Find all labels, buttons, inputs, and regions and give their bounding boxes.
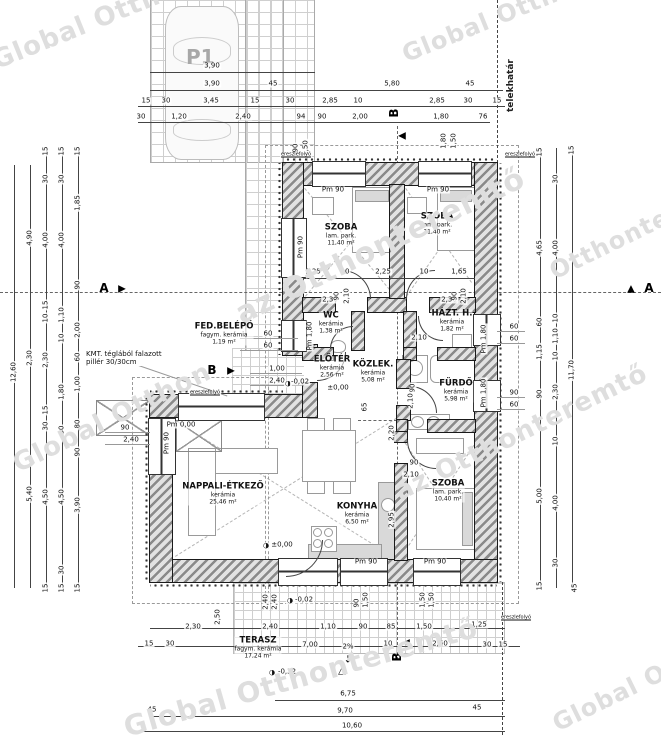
dim-label: 10 bbox=[553, 351, 560, 362]
dim-label: 2,50 bbox=[215, 608, 222, 626]
wall-interior bbox=[404, 312, 416, 348]
room-name: TERASZ bbox=[234, 637, 281, 646]
section-marker: B bbox=[390, 652, 404, 661]
dim-label: Pm 0,00 bbox=[166, 422, 197, 429]
room-area: 2,56 m² bbox=[314, 372, 351, 379]
dim-label: 1,00 bbox=[75, 375, 82, 393]
dim-label: 30 bbox=[463, 98, 474, 105]
dim-label: 45 bbox=[465, 81, 476, 88]
wall-interior bbox=[438, 348, 475, 360]
dim-line bbox=[138, 731, 505, 732]
dim-label: 1,10 bbox=[59, 306, 66, 324]
leader-line bbox=[497, 397, 525, 398]
dim-label: Pm 90 bbox=[354, 559, 378, 566]
dim-label: Pm 90 bbox=[426, 187, 450, 194]
dim-label: 1,50 bbox=[429, 591, 436, 609]
dim-line bbox=[150, 72, 315, 73]
dim-label: 2,40 bbox=[263, 593, 270, 611]
dim-label: 90 bbox=[358, 624, 369, 631]
dim-label: 90 bbox=[509, 390, 520, 397]
room-name: SZOBA bbox=[432, 480, 465, 489]
dim-label: -0,32 bbox=[277, 669, 297, 676]
dim-label: 15 bbox=[537, 147, 544, 158]
dim-line bbox=[138, 106, 505, 107]
room-finish: kerámia bbox=[314, 365, 351, 372]
stove-burner bbox=[313, 528, 322, 537]
room-label-k-zlek-: KÖZLEK.kerámia5,08 m² bbox=[353, 361, 394, 384]
dim-label: ereszlefolyó bbox=[504, 153, 536, 158]
wall-exterior-right bbox=[475, 163, 497, 582]
dim-label: 1,80 bbox=[59, 383, 66, 401]
dim-label: ◑ bbox=[268, 670, 276, 677]
dim-label: 15 bbox=[59, 583, 66, 594]
dim-label: 7,00 bbox=[301, 642, 319, 649]
dim-label: 2,40 bbox=[234, 114, 252, 121]
room-area: 1,38 m² bbox=[319, 328, 343, 335]
room-area: 1,19 m² bbox=[195, 339, 254, 346]
dim-label: ereszlefolyó bbox=[500, 616, 532, 621]
wall-interior bbox=[390, 185, 404, 298]
dim-label: 90 bbox=[317, 114, 328, 121]
dim-label: 2,40 bbox=[272, 593, 279, 611]
dim-line bbox=[540, 148, 541, 588]
dim-label: 1,80 bbox=[441, 132, 448, 150]
section-marker: ◀ bbox=[398, 131, 406, 142]
room-area: 11,40 m² bbox=[421, 229, 454, 236]
dim-label: 1,50 bbox=[415, 624, 433, 631]
wall-interior bbox=[404, 348, 416, 360]
bed-pillow bbox=[355, 190, 389, 202]
dim-label: 60 bbox=[537, 317, 544, 328]
dim-label: 2,10 bbox=[402, 472, 420, 479]
room-label-konyha: KONYHAkerámia6,50 m² bbox=[337, 503, 377, 526]
dim-label: 15 bbox=[75, 146, 82, 157]
dim-label: 15 bbox=[43, 405, 50, 416]
section-marker: A bbox=[644, 281, 653, 295]
window-bedroom2-top bbox=[418, 161, 472, 187]
watermark-text: Otthonteremtő bbox=[545, 165, 661, 285]
dim-label: 4,00 bbox=[43, 231, 50, 249]
dim-label: 4,00 bbox=[553, 494, 560, 512]
room-label-el-t-r: ELŐTÉRkerámia2,56 m² bbox=[314, 356, 351, 379]
section-marker: ▲ bbox=[627, 284, 635, 295]
dim-label: 1,15 bbox=[537, 343, 544, 361]
dining-table bbox=[302, 430, 356, 482]
room-area: 5,98 m² bbox=[439, 396, 473, 403]
dim-label: ±0,00 bbox=[326, 385, 349, 392]
kitchen-sink bbox=[381, 498, 395, 512]
dim-label: 2% bbox=[341, 644, 354, 651]
dim-label: 2,30 bbox=[27, 349, 34, 367]
stove-burner bbox=[324, 539, 333, 548]
dim-label: 1,20 bbox=[170, 114, 188, 121]
dim-label: Pm 90 bbox=[321, 187, 345, 194]
dim-label: Pm 90 bbox=[164, 431, 171, 455]
dim-line bbox=[150, 90, 503, 91]
insulation-right bbox=[497, 163, 504, 582]
note-line: pillér 30/30cm bbox=[86, 358, 162, 366]
dim-label: Pm 90 bbox=[423, 559, 447, 566]
leader-line bbox=[497, 331, 525, 332]
room-name: KÖZLEK. bbox=[353, 361, 394, 370]
dim-label: 60 bbox=[509, 324, 520, 331]
plot-boundary-line-bottom bbox=[502, 582, 503, 735]
dim-label: ◑ bbox=[286, 598, 294, 605]
dim-label: 10 bbox=[383, 641, 394, 648]
sink-bowl bbox=[411, 416, 424, 428]
dim-label: 15 bbox=[250, 98, 261, 105]
dim-label: 30 bbox=[59, 565, 66, 576]
dim-label: 15 bbox=[144, 641, 155, 648]
dim-label: 2,25 bbox=[374, 269, 392, 276]
room-name: ELŐTÉR bbox=[314, 356, 351, 365]
dim-label: 3,45 bbox=[202, 98, 220, 105]
dim-label: 1,50 bbox=[363, 591, 370, 609]
room-name: NAPPALI-ÉTKEZŐ bbox=[182, 483, 263, 492]
dim-label: 30 bbox=[43, 174, 50, 185]
window-wc-left bbox=[281, 320, 307, 352]
dim-label: Pm 1,80 bbox=[481, 378, 488, 409]
dim-label: 10 bbox=[340, 269, 351, 276]
dim-label: 30 bbox=[136, 114, 147, 121]
dim-label: 90 bbox=[452, 291, 459, 302]
dim-label: 90 bbox=[75, 280, 82, 291]
dim-label: 10,60 bbox=[341, 723, 363, 730]
dim-label: 1,80 bbox=[432, 114, 450, 121]
dim-label: Pm 1,80 bbox=[307, 321, 314, 352]
dim-label: 65 bbox=[362, 402, 369, 413]
dim-label: 60 bbox=[509, 336, 520, 343]
dim-label: 2,40 bbox=[122, 437, 140, 444]
dim-label: 1,85 bbox=[75, 194, 82, 212]
dim-label: 90 bbox=[354, 598, 361, 609]
wall-entry-west-stub2 bbox=[303, 383, 317, 417]
room-name: SZOBA bbox=[325, 224, 358, 233]
dim-label: 30 bbox=[285, 98, 296, 105]
dim-label: 90 bbox=[334, 291, 341, 302]
section-marker: B bbox=[387, 108, 401, 117]
dim-label: 30 bbox=[59, 174, 66, 185]
dim-label: 1,50 bbox=[420, 591, 427, 609]
dim-label: Pm 90 bbox=[298, 235, 305, 259]
room-area: 17,24 m² bbox=[234, 653, 281, 660]
dim-label: 11,70 bbox=[569, 359, 576, 381]
room-finish: kerámia bbox=[337, 512, 377, 519]
room-label-terasz: TERASZfagym. kerámia17,24 m² bbox=[234, 637, 281, 660]
dim-line bbox=[556, 148, 557, 588]
room-label-nappali-tkez-: NAPPALI-ÉTKEZŐkerámia25,46 m² bbox=[182, 483, 263, 506]
dim-label: 5,40 bbox=[27, 485, 34, 503]
dim-label: 4,90 bbox=[27, 229, 34, 247]
section-marker: A bbox=[99, 281, 108, 295]
dim-label: 6,75 bbox=[339, 691, 357, 698]
dim-label: ereszlefolyó bbox=[280, 153, 312, 158]
dim-label: 2,10 bbox=[344, 287, 351, 305]
room-finish: fagym. kerámia bbox=[195, 332, 254, 339]
dim-label: 2,30 bbox=[553, 383, 560, 401]
room-name: FED.BELÉPŐ bbox=[195, 323, 254, 332]
dim-label: 85 bbox=[386, 624, 397, 631]
chair bbox=[333, 418, 351, 431]
dim-label: 5,00 bbox=[537, 487, 544, 505]
room-finish: kerámia bbox=[182, 492, 263, 499]
leader-line bbox=[105, 444, 150, 445]
chair bbox=[333, 481, 351, 494]
dim-label: 2,85 bbox=[321, 98, 339, 105]
dim-label: 90 bbox=[120, 425, 131, 432]
leader-line bbox=[497, 343, 525, 344]
dim-line bbox=[138, 646, 520, 647]
dim-label: 1,10 bbox=[553, 327, 560, 345]
window-bedroom1-top bbox=[312, 161, 366, 187]
floor-plan-canvas: Global OtthoGlobal Otthonteremtőaz Ottho… bbox=[0, 0, 661, 735]
room-finish: lam. park. bbox=[421, 222, 454, 229]
dim-label: 30 bbox=[553, 174, 560, 185]
watermark-text: Global Ottho bbox=[548, 632, 661, 735]
dim-line bbox=[78, 148, 79, 588]
wall-interior bbox=[428, 420, 475, 432]
dim-label: 2,10 bbox=[461, 287, 468, 305]
dim-label: 15 bbox=[569, 145, 576, 156]
dim-label: 2,00 bbox=[351, 114, 369, 121]
room-label-szoba: SZOBAlam. park.10,40 m² bbox=[432, 480, 465, 503]
room-name: KONYHA bbox=[337, 503, 377, 512]
dim-label: 30 bbox=[43, 421, 50, 432]
note-line: KMT. téglából falazott bbox=[86, 350, 162, 358]
dim-label: 2,10 bbox=[408, 392, 415, 410]
construction-note: KMT. téglából falazottpillér 30/30cm bbox=[86, 350, 162, 366]
room-name: WC bbox=[319, 312, 343, 321]
dim-label: ±0,00 bbox=[270, 542, 293, 549]
dim-label: 30 bbox=[482, 642, 493, 649]
dim-label: 15 bbox=[43, 583, 50, 594]
dim-line bbox=[303, 278, 475, 279]
dim-label: 1,00 bbox=[268, 366, 286, 373]
dim-label: 4,65 bbox=[537, 239, 544, 257]
dim-line bbox=[62, 148, 63, 588]
nightstand bbox=[312, 197, 334, 215]
chair bbox=[307, 481, 325, 494]
dim-label: 76 bbox=[478, 114, 489, 121]
dim-label: 30 bbox=[59, 425, 66, 436]
dim-label: 15 bbox=[537, 581, 544, 592]
room-finish: lam. park. bbox=[432, 489, 465, 496]
dim-label: 45 bbox=[472, 705, 483, 712]
dim-label: 45 bbox=[268, 81, 279, 88]
room-label-f-rd-: FÜRDŐkerámia5,98 m² bbox=[439, 380, 473, 403]
room-finish: lam. park. bbox=[325, 233, 358, 240]
dim-label: 15 bbox=[492, 98, 503, 105]
dim-label: 2,20 bbox=[389, 424, 396, 442]
stove-burner bbox=[324, 528, 333, 537]
dim-label: 2,85 bbox=[428, 98, 446, 105]
room-finish: kerámia bbox=[432, 319, 473, 326]
dim-label: 3,90 bbox=[203, 81, 221, 88]
section-marker: ▶ bbox=[227, 366, 235, 377]
dim-label: 5,80 bbox=[383, 81, 401, 88]
dim-label: 15 bbox=[59, 146, 66, 157]
dim-label: 10 bbox=[419, 269, 430, 276]
room-area: 1,82 m² bbox=[432, 326, 473, 333]
dim-label: 2,00 bbox=[75, 321, 82, 339]
room-name: HÁZT. H. bbox=[432, 310, 473, 319]
dim-label: 15 bbox=[75, 583, 82, 594]
dim-label: 1,25 bbox=[470, 622, 488, 629]
dim-label: 30 bbox=[161, 98, 172, 105]
dim-label: 94 bbox=[296, 114, 307, 121]
section-marker: ◀ bbox=[402, 638, 410, 649]
plot-boundary-line-top bbox=[497, 0, 498, 163]
dim-label: 10 bbox=[353, 98, 364, 105]
dim-label: -0,02 bbox=[294, 597, 314, 604]
dim-label: 12,60 bbox=[11, 361, 18, 383]
chair bbox=[307, 418, 325, 431]
dim-label: 30 bbox=[165, 641, 176, 648]
room-label-h-zt-h-: HÁZT. H.kerámia1,82 m² bbox=[432, 310, 473, 333]
dim-label: 30 bbox=[553, 558, 560, 569]
section-marker: ↓ bbox=[344, 655, 352, 666]
dim-label: 80 bbox=[75, 419, 82, 430]
dim-label: 2,95 bbox=[389, 511, 396, 529]
dim-label: 90 bbox=[537, 389, 544, 400]
dim-label: 15 bbox=[43, 300, 50, 311]
dim-label: 15 bbox=[43, 146, 50, 157]
dim-label: 2,30 bbox=[43, 351, 50, 369]
section-marker: △ bbox=[338, 666, 346, 677]
dim-label: 9,70 bbox=[336, 708, 354, 715]
plot-boundary-label: telekhatár bbox=[506, 59, 516, 112]
room-finish: fagym. kerámia bbox=[234, 646, 281, 653]
dim-label: Pm 1,80 bbox=[481, 324, 488, 355]
wall-interior bbox=[397, 420, 407, 432]
room-label-szoba: SZOBAlam. park.11,40 m² bbox=[325, 224, 358, 247]
room-name: SZOBA bbox=[421, 213, 454, 222]
dim-label: 60 bbox=[75, 352, 82, 363]
dim-label: 15 bbox=[498, 642, 509, 649]
wall-interior bbox=[352, 312, 364, 350]
wall-interior bbox=[395, 432, 407, 442]
dim-label: 2,40 bbox=[261, 624, 279, 631]
leader-line bbox=[497, 409, 525, 410]
dim-label: 1,25 bbox=[304, 269, 322, 276]
room-finish: kerámia bbox=[319, 321, 343, 328]
dim-label: 90 bbox=[409, 460, 420, 467]
dim-label: 60 bbox=[263, 343, 274, 350]
dim-label: 1,10 bbox=[319, 624, 337, 631]
dim-line bbox=[150, 716, 505, 717]
dim-label: ◑ bbox=[262, 543, 270, 550]
room-label-fed-bel-p-: FED.BELÉPŐfagym. kerámia1,19 m² bbox=[195, 323, 254, 346]
room-area: 11,40 m² bbox=[325, 240, 358, 247]
room-area: 6,50 m² bbox=[337, 519, 377, 526]
dim-label: 45 bbox=[572, 583, 579, 594]
room-finish: kerámia bbox=[353, 370, 394, 377]
dim-label: 10 bbox=[43, 313, 50, 324]
dim-label: 4,50 bbox=[59, 488, 66, 506]
room-label-wc: WCkerámia1,38 m² bbox=[319, 312, 343, 335]
dim-label: 3,90 bbox=[203, 63, 221, 70]
dim-label: ereszlefolyó bbox=[189, 391, 221, 396]
room-area: 5,08 m² bbox=[353, 377, 394, 384]
section-marker: ▶ bbox=[118, 284, 126, 295]
dim-label: 2,30 bbox=[184, 624, 202, 631]
dim-label: 2,10 bbox=[410, 335, 428, 342]
leader-line bbox=[250, 373, 302, 374]
room-area: 10,40 m² bbox=[432, 496, 465, 503]
dim-label: 10 bbox=[59, 333, 66, 344]
dim-label: 4,00 bbox=[59, 231, 66, 249]
dim-label: 15 bbox=[141, 98, 152, 105]
watermark-text: Global Otthonteremtő bbox=[398, 0, 661, 68]
dim-label: 45 bbox=[147, 707, 158, 714]
leader-line bbox=[240, 350, 298, 351]
dim-line bbox=[275, 700, 505, 701]
leader-line bbox=[105, 432, 150, 433]
wall-interior bbox=[368, 298, 406, 312]
window-living-corner bbox=[178, 393, 265, 421]
car-icon bbox=[165, 6, 239, 160]
dim-label: 4,50 bbox=[43, 488, 50, 506]
dim-label: 2,60 bbox=[431, 641, 449, 648]
dim-label: -0,02 bbox=[290, 379, 310, 386]
dim-label: 1,50 bbox=[451, 132, 458, 150]
dim-label: 10 bbox=[553, 313, 560, 324]
dim-label: 90 bbox=[75, 447, 82, 458]
room-name: FÜRDŐ bbox=[439, 380, 473, 389]
kitchen-divider-dashed bbox=[358, 420, 397, 421]
room-finish: kerámia bbox=[439, 389, 473, 396]
dim-label: 4,00 bbox=[553, 239, 560, 257]
dim-label: 1,65 bbox=[450, 269, 468, 276]
dim-label: 3,90 bbox=[75, 496, 82, 514]
room-label-szoba: SZOBAlam. park.11,40 m² bbox=[421, 213, 454, 236]
dim-label: 10 bbox=[553, 436, 560, 447]
section-marker: B bbox=[207, 363, 216, 377]
dim-label: 60 bbox=[509, 402, 520, 409]
dim-line bbox=[138, 122, 490, 123]
room-area: 25,46 m² bbox=[182, 499, 263, 506]
dim-label: 60 bbox=[263, 331, 274, 338]
